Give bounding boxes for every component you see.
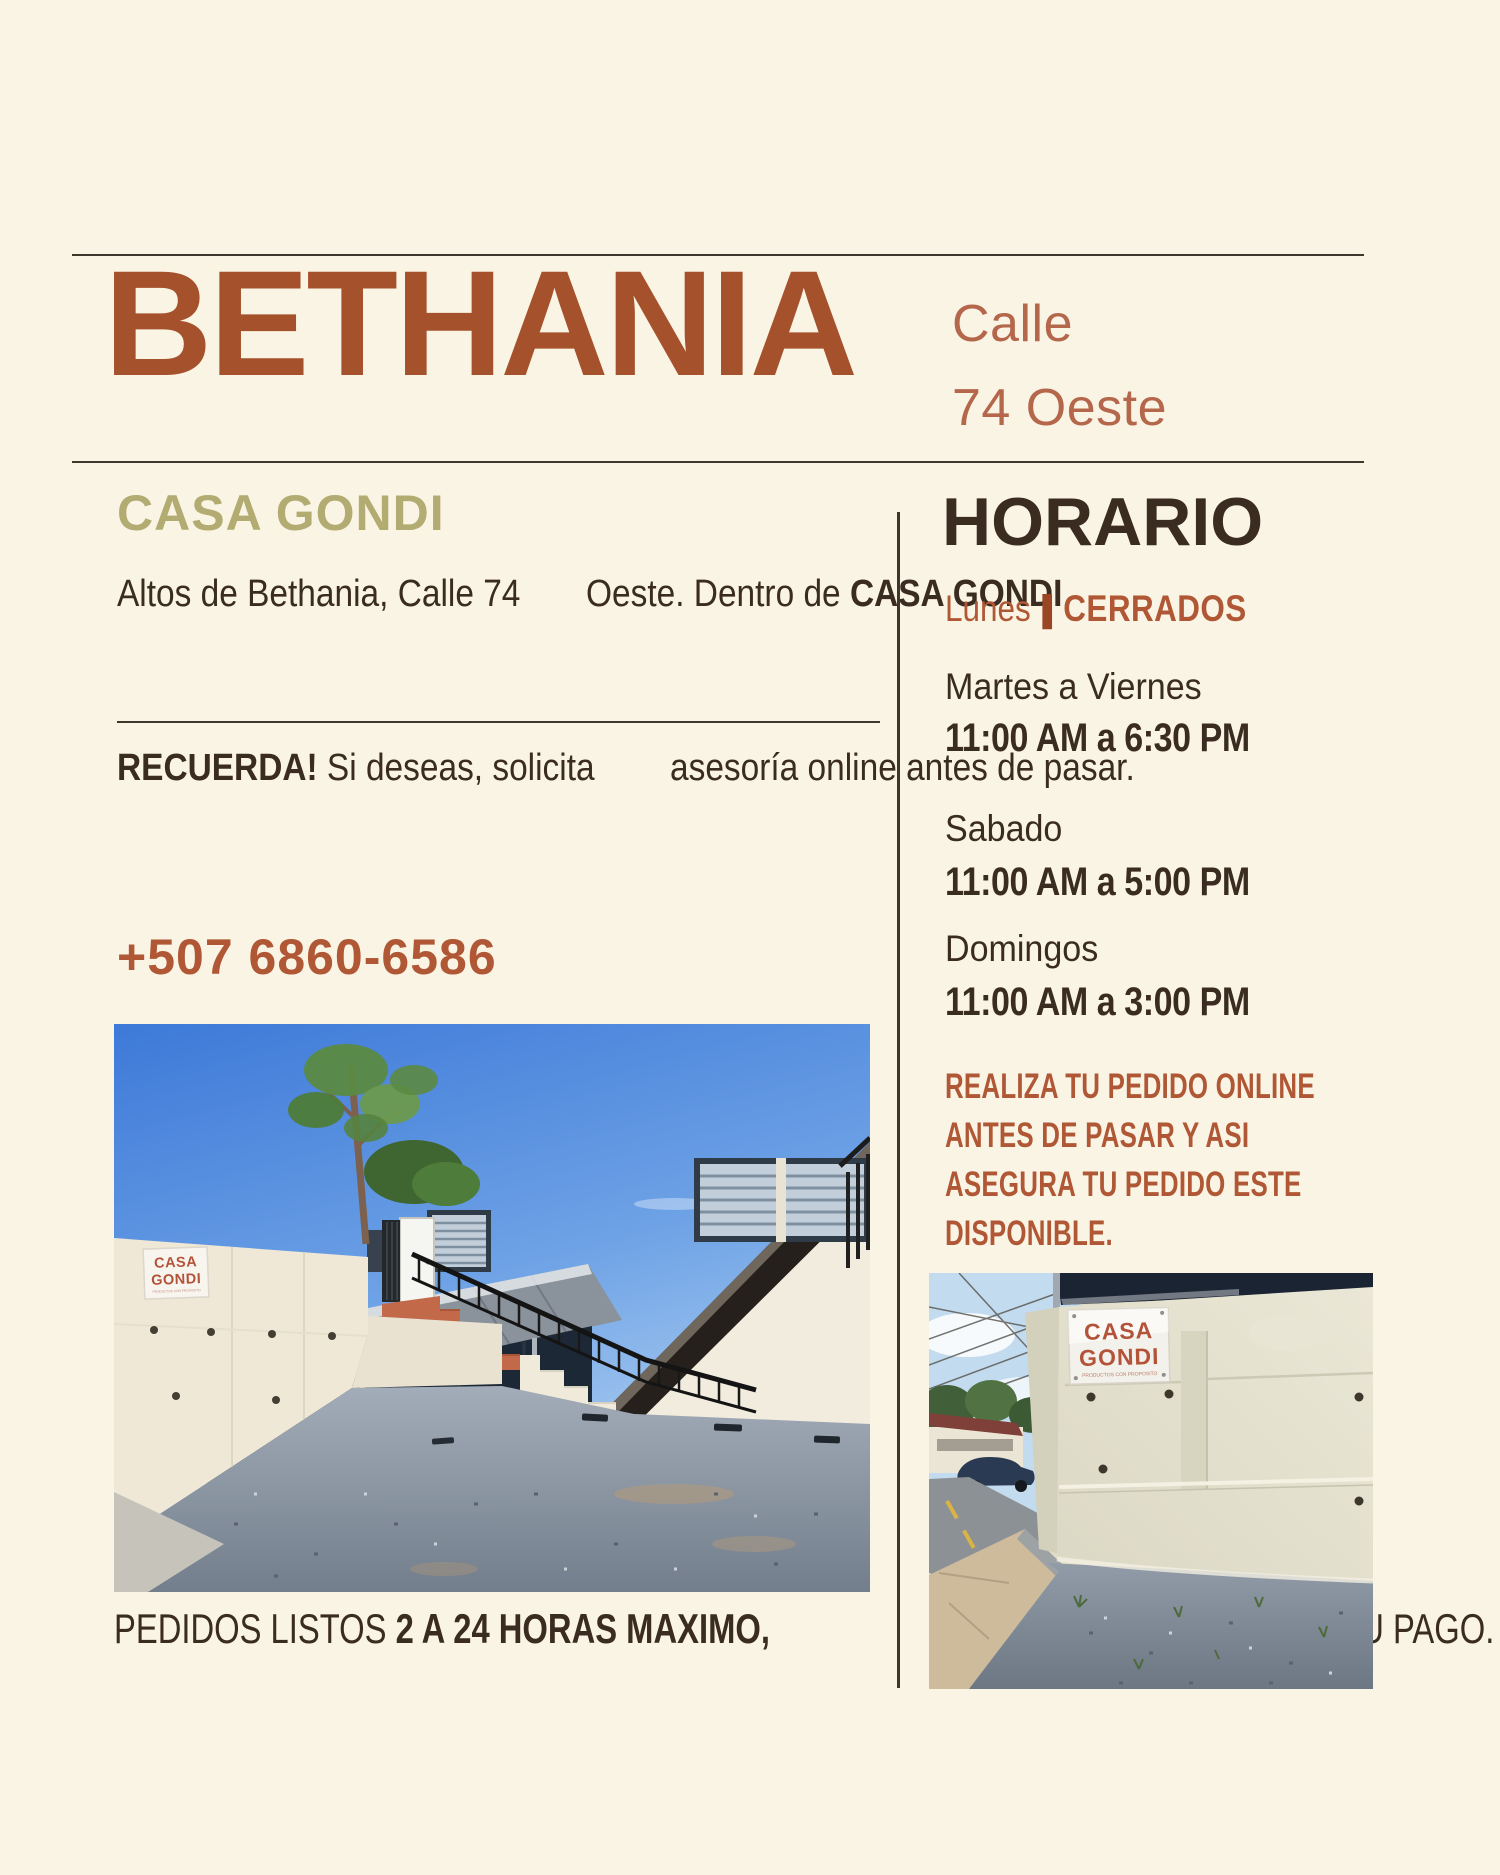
address-line-1: Altos de Bethania, Calle 74 — [117, 566, 520, 622]
main-sign-line-2: GONDI — [151, 1271, 202, 1289]
address-line-2-text: Oeste. Dentro de — [586, 573, 850, 615]
subtitle-line-2: 74 Oeste — [952, 366, 1167, 450]
flyer: BETHANIA Calle 74 Oeste CASA GONDI Altos… — [0, 0, 1500, 1875]
schedule-days-2-text: Domingos — [945, 928, 1098, 970]
wall-photo: CASA GONDI PRODUCTOS CON PROPOSITO — [929, 1273, 1373, 1689]
note-line-3: ASEGURA TU PEDIDO ESTE — [945, 1160, 1315, 1209]
business-name: CASA GONDI — [117, 484, 445, 542]
storefront-photo-art: CASA GONDI PRODUCTOS CON PROPOSITO — [114, 1024, 870, 1592]
reminder-line-1: RECUERDA! Si deseas, solicita — [117, 740, 595, 797]
monday-label: Lunes — [945, 588, 1031, 629]
note-line-2: ANTES DE PASAR Y ASI — [945, 1111, 1315, 1160]
note-line-4: DISPONIBLE. — [945, 1209, 1315, 1258]
schedule-days-1-text: Sabado — [945, 808, 1062, 850]
page-title: BETHANIA — [104, 252, 855, 395]
schedule-days-0-text: Martes a Viernes — [945, 666, 1202, 708]
divider-left-column — [117, 721, 880, 723]
schedule-hours-1-text: 11:00 AM a 5:00 PM — [945, 860, 1250, 905]
divider-vertical — [897, 512, 900, 1688]
phone-number: +507 6860-6586 — [117, 928, 497, 986]
main-photo-sign: CASA GONDI PRODUCTOS CON PROPOSITO — [143, 1247, 209, 1299]
schedule-hours-0: 11:00 AM a 6:30 PM — [945, 716, 1304, 761]
pickup-line-1-text: PEDIDOS LISTOS — [114, 1605, 396, 1652]
wall-photo-art: CASA GONDI PRODUCTOS CON PROPOSITO — [929, 1273, 1373, 1689]
schedule-days-2: Domingos — [945, 928, 1112, 970]
pickup-line-1-emphasis: 2 A 24 HORAS MAXIMO, — [396, 1605, 770, 1652]
order-online-note-inner: REALIZA TU PEDIDO ONLINE ANTES DE PASAR … — [945, 1062, 1315, 1258]
monday-status: CERRADOS — [1063, 588, 1246, 629]
schedule-monday-inner: Lunes|CERRADOS — [945, 588, 1247, 630]
schedule-hours-1: 11:00 AM a 5:00 PM — [945, 860, 1304, 905]
small-sign-line-2: GONDI — [1079, 1343, 1160, 1371]
main-sign-line-1: CASA — [154, 1254, 198, 1271]
schedule-days-1: Sabado — [945, 808, 1073, 850]
subtitle-line-1: Calle — [952, 282, 1167, 366]
schedule-hours-2: 11:00 AM a 3:00 PM — [945, 980, 1304, 1025]
small-sign-line-1: CASA — [1084, 1317, 1154, 1345]
pickup-line-1: PEDIDOS LISTOS 2 A 24 HORAS MAXIMO, — [114, 1600, 770, 1658]
storefront-photo: CASA GONDI PRODUCTOS CON PROPOSITO — [114, 1024, 870, 1592]
reminder-emphasis: RECUERDA! — [117, 747, 318, 789]
schedule-monday: Lunes|CERRADOS — [945, 588, 1300, 630]
monday-separator: | — [1036, 588, 1057, 630]
note-line-1: REALIZA TU PEDIDO ONLINE — [945, 1062, 1315, 1111]
divider-under-title — [72, 461, 1364, 463]
order-online-note: REALIZA TU PEDIDO ONLINE ANTES DE PASAR … — [945, 1062, 1445, 1258]
reminder-line-1-rest: Si deseas, solicita — [318, 747, 595, 789]
schedule-hours-0-text: 11:00 AM a 6:30 PM — [945, 716, 1250, 761]
wall-photo-sign: CASA GONDI PRODUCTOS CON PROPOSITO — [1068, 1308, 1170, 1385]
schedule-hours-2-text: 11:00 AM a 3:00 PM — [945, 980, 1250, 1025]
schedule-days-0: Martes a Viernes — [945, 666, 1224, 708]
header-subtitle: Calle 74 Oeste — [952, 282, 1167, 450]
schedule-title: HORARIO — [942, 483, 1263, 561]
